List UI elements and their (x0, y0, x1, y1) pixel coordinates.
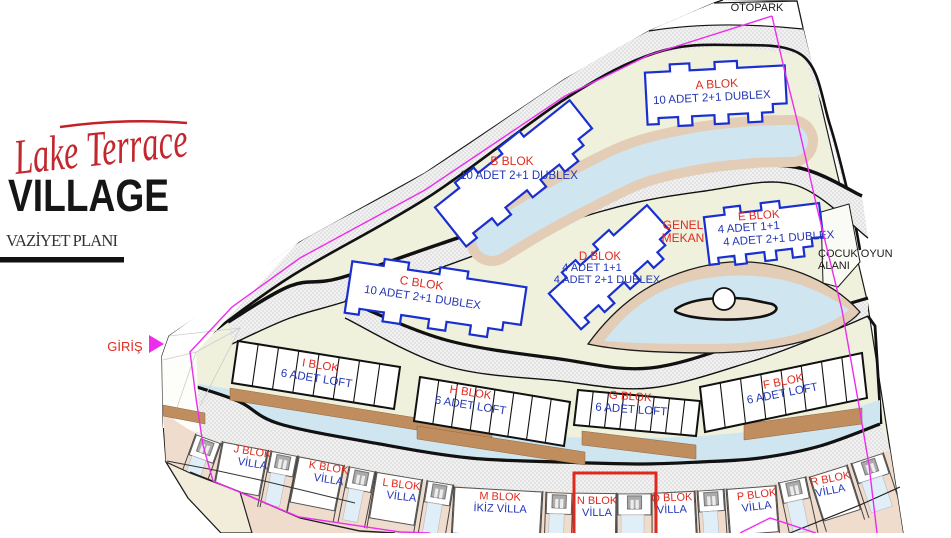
svg-text:ALANI: ALANI (818, 260, 850, 272)
svg-text:N BLOK: N BLOK (577, 495, 618, 507)
svg-text:VAZİYET PLANI: VAZİYET PLANI (6, 231, 118, 250)
svg-text:B BLOK: B BLOK (490, 154, 533, 168)
svg-text:A BLOK: A BLOK (695, 76, 738, 92)
svg-text:VILLAGE: VILLAGE (8, 170, 169, 221)
svg-text:4 ADET 1+1: 4 ADET 1+1 (562, 262, 621, 274)
svg-text:İKİZ VİLLA: İKİZ VİLLA (473, 501, 527, 516)
svg-text:OTOPARK: OTOPARK (731, 2, 784, 14)
svg-text:GİRİŞ: GİRİŞ (107, 339, 143, 354)
svg-text:O BLOK: O BLOK (651, 491, 693, 504)
svg-text:4 ADET 2+1 DUBLEX: 4 ADET 2+1 DUBLEX (554, 274, 661, 286)
svg-text:VİLLA: VİLLA (582, 506, 613, 519)
svg-text:10 ADET 2+1 DUBLEX: 10 ADET 2+1 DUBLEX (460, 170, 578, 182)
svg-text:VİLLA: VİLLA (657, 502, 688, 516)
svg-text:GENEL: GENEL (663, 218, 704, 232)
svg-text:MEKAN: MEKAN (662, 231, 705, 245)
